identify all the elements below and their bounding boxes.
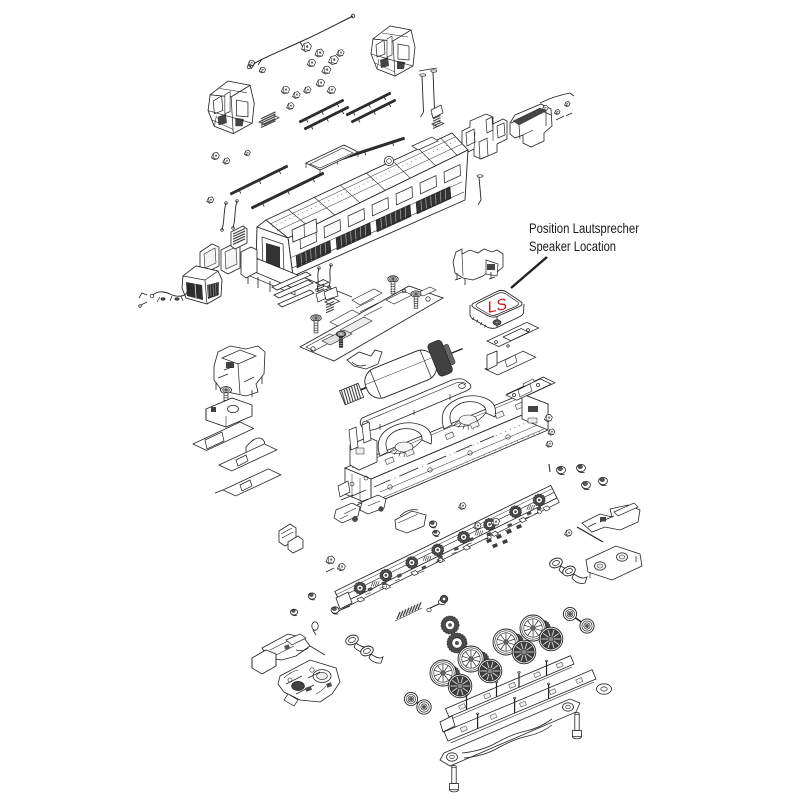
svg-text:Speaker Location: Speaker Location [529, 238, 616, 254]
svg-text:Position Lautsprecher: Position Lautsprecher [529, 220, 639, 236]
